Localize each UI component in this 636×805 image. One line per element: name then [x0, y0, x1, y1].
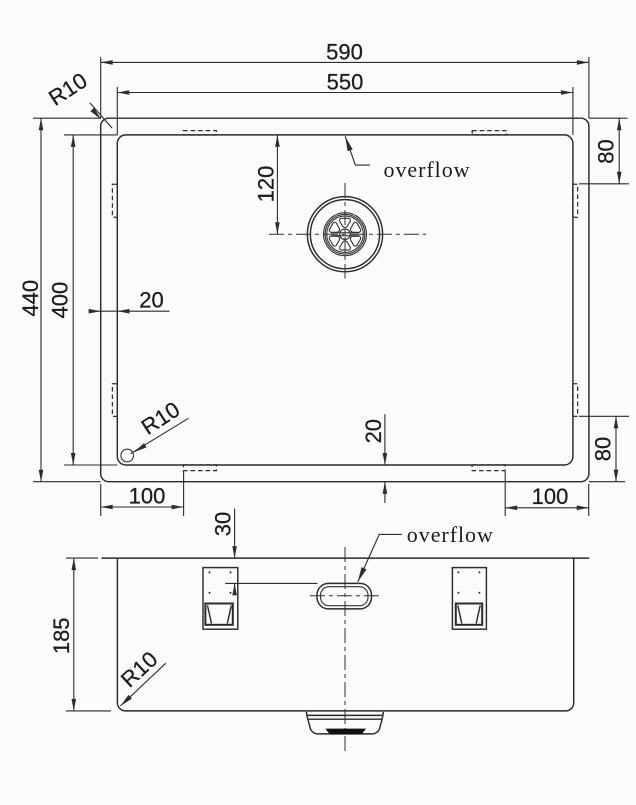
svg-text:440: 440: [18, 280, 43, 317]
svg-text:80: 80: [591, 437, 616, 461]
svg-text:30: 30: [211, 512, 236, 536]
svg-text:20: 20: [139, 288, 163, 313]
svg-text:overflow: overflow: [384, 157, 471, 182]
svg-text:185: 185: [49, 617, 74, 654]
svg-text:400: 400: [48, 282, 73, 319]
svg-text:overflow: overflow: [407, 522, 494, 547]
svg-text:20: 20: [361, 419, 386, 443]
svg-text:590: 590: [326, 40, 363, 65]
svg-text:100: 100: [532, 484, 569, 509]
svg-text:550: 550: [327, 70, 364, 95]
svg-text:100: 100: [129, 484, 166, 509]
svg-text:120: 120: [254, 166, 279, 203]
svg-text:80: 80: [594, 139, 619, 163]
